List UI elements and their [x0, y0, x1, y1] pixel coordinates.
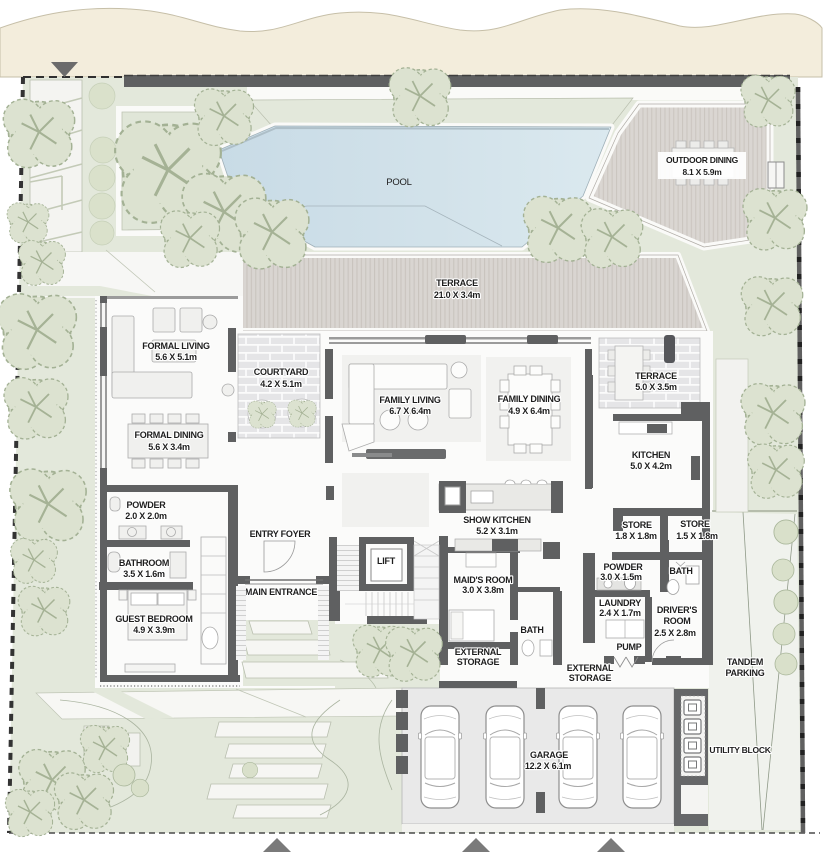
svg-text:8.1 X 5.9m: 8.1 X 5.9m [682, 167, 722, 177]
svg-text:STORAGE: STORAGE [569, 673, 612, 683]
svg-text:ENTRY FOYER: ENTRY FOYER [250, 529, 312, 539]
svg-text:3.0 X 1.5m: 3.0 X 1.5m [600, 572, 642, 582]
svg-text:COURTYARD: COURTYARD [254, 367, 309, 377]
svg-text:STORAGE: STORAGE [457, 657, 500, 667]
svg-text:BATHROOM: BATHROOM [119, 558, 169, 568]
svg-text:5.0 X 3.5m: 5.0 X 3.5m [635, 382, 677, 392]
svg-text:FORMAL DINING: FORMAL DINING [134, 430, 203, 440]
svg-text:5.6 X 3.4m: 5.6 X 3.4m [148, 442, 190, 452]
svg-text:FAMILY LIVING: FAMILY LIVING [379, 395, 441, 405]
svg-text:POWDER: POWDER [604, 562, 644, 572]
svg-text:PARKING: PARKING [725, 668, 764, 678]
svg-text:BATH: BATH [669, 566, 692, 576]
svg-text:SHOW KITCHEN: SHOW KITCHEN [463, 515, 531, 525]
svg-text:GARAGE: GARAGE [530, 750, 568, 760]
svg-text:EXTERNAL: EXTERNAL [567, 663, 614, 673]
svg-text:5.0 X 4.2m: 5.0 X 4.2m [630, 461, 672, 471]
svg-text:4.9 X 3.9m: 4.9 X 3.9m [133, 625, 175, 635]
svg-text:POWDER: POWDER [127, 500, 167, 510]
svg-text:1.8 X 1.8m: 1.8 X 1.8m [615, 531, 657, 541]
svg-text:LAUNDRY: LAUNDRY [599, 598, 641, 608]
svg-text:FAMILY DINING: FAMILY DINING [498, 394, 561, 404]
svg-text:6.7 X 6.4m: 6.7 X 6.4m [389, 406, 431, 416]
svg-text:2.0 X 2.0m: 2.0 X 2.0m [125, 511, 167, 521]
svg-text:TERRACE: TERRACE [635, 371, 677, 381]
svg-text:21.0 X 3.4m: 21.0 X 3.4m [434, 290, 481, 300]
svg-text:2.4 X 1.7m: 2.4 X 1.7m [599, 608, 641, 618]
svg-text:3.0 X 3.8m: 3.0 X 3.8m [462, 585, 504, 595]
svg-text:PUMP: PUMP [616, 642, 641, 652]
svg-text:3.5 X 1.6m: 3.5 X 1.6m [123, 569, 165, 579]
svg-text:4.2 X 5.1m: 4.2 X 5.1m [260, 379, 302, 389]
svg-text:GUEST BEDROOM: GUEST BEDROOM [115, 614, 192, 624]
svg-text:STORE: STORE [680, 519, 710, 529]
svg-text:1.5 X 1.8m: 1.5 X 1.8m [676, 531, 718, 541]
svg-text:STORE: STORE [622, 520, 652, 530]
svg-text:LIFT: LIFT [377, 556, 396, 566]
svg-text:2.5 X 2.8m: 2.5 X 2.8m [654, 628, 696, 638]
svg-text:BATH: BATH [520, 625, 543, 635]
svg-text:4.9 X 6.4m: 4.9 X 6.4m [508, 406, 550, 416]
svg-text:5.2 X 3.1m: 5.2 X 3.1m [476, 526, 518, 536]
svg-text:TANDEM: TANDEM [727, 657, 763, 667]
svg-text:DRIVER'S: DRIVER'S [657, 605, 697, 615]
svg-text:12.2 X 6.1m: 12.2 X 6.1m [525, 761, 572, 771]
svg-text:TERRACE: TERRACE [436, 278, 478, 288]
svg-text:ROOM: ROOM [664, 616, 691, 626]
svg-text:MAIN ENTRANCE: MAIN ENTRANCE [245, 587, 317, 597]
svg-text:EXTERNAL: EXTERNAL [455, 647, 502, 657]
svg-text:KITCHEN: KITCHEN [632, 450, 670, 460]
svg-text:POOL: POOL [386, 177, 411, 188]
svg-text:MAID'S ROOM: MAID'S ROOM [454, 575, 513, 585]
svg-text:UTILITY BLOCK: UTILITY BLOCK [709, 745, 771, 755]
svg-text:FORMAL LIVING: FORMAL LIVING [142, 341, 210, 351]
svg-text:OUTDOOR DINING: OUTDOOR DINING [666, 155, 739, 165]
svg-text:5.6 X 5.1m: 5.6 X 5.1m [155, 352, 197, 362]
